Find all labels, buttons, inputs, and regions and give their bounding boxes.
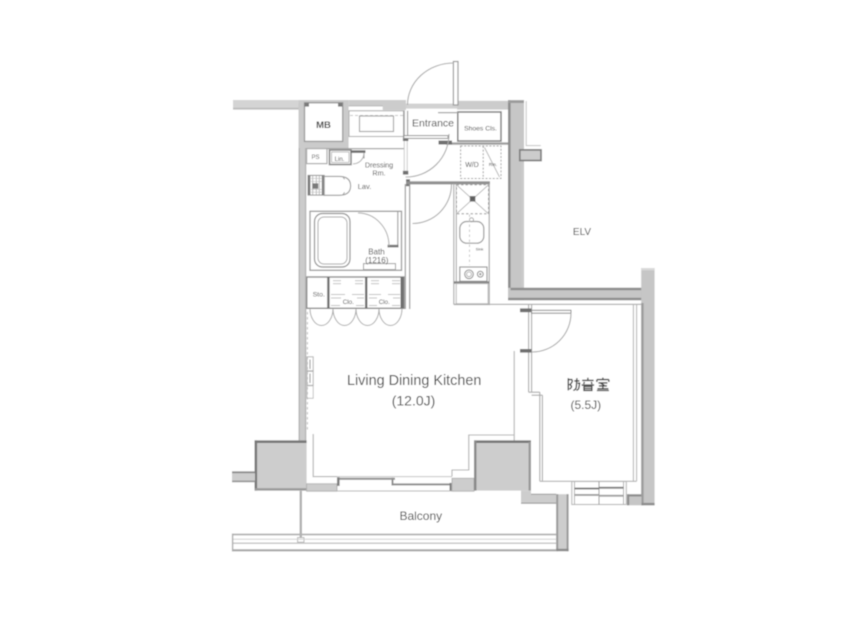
svg-text:Lav.: Lav.	[358, 182, 372, 191]
svg-text:MB: MB	[316, 120, 331, 131]
svg-text:Lin.: Lin.	[335, 157, 345, 163]
svg-text:Clo.: Clo.	[379, 299, 390, 306]
svg-text:PS: PS	[311, 155, 319, 161]
svg-text:Rm.: Rm.	[489, 162, 497, 167]
svg-text:Clo.: Clo.	[343, 299, 354, 306]
svg-text:W/D: W/D	[465, 162, 479, 169]
svg-text:Entrance: Entrance	[412, 118, 454, 130]
svg-text:Living Dining Kitchen: Living Dining Kitchen	[347, 373, 481, 389]
svg-text:Balcony: Balcony	[399, 509, 442, 523]
svg-text:ELV: ELV	[573, 227, 591, 238]
svg-text:(12.0J): (12.0J)	[392, 393, 436, 409]
svg-text:Shoes Cls.: Shoes Cls.	[464, 126, 497, 133]
svg-text:(1216): (1216)	[365, 256, 388, 265]
svg-text:Rm.: Rm.	[372, 168, 385, 177]
svg-text:Sink: Sink	[476, 247, 484, 252]
svg-text:(5.5J): (5.5J)	[570, 398, 601, 412]
svg-text:Sto.: Sto.	[313, 291, 325, 298]
